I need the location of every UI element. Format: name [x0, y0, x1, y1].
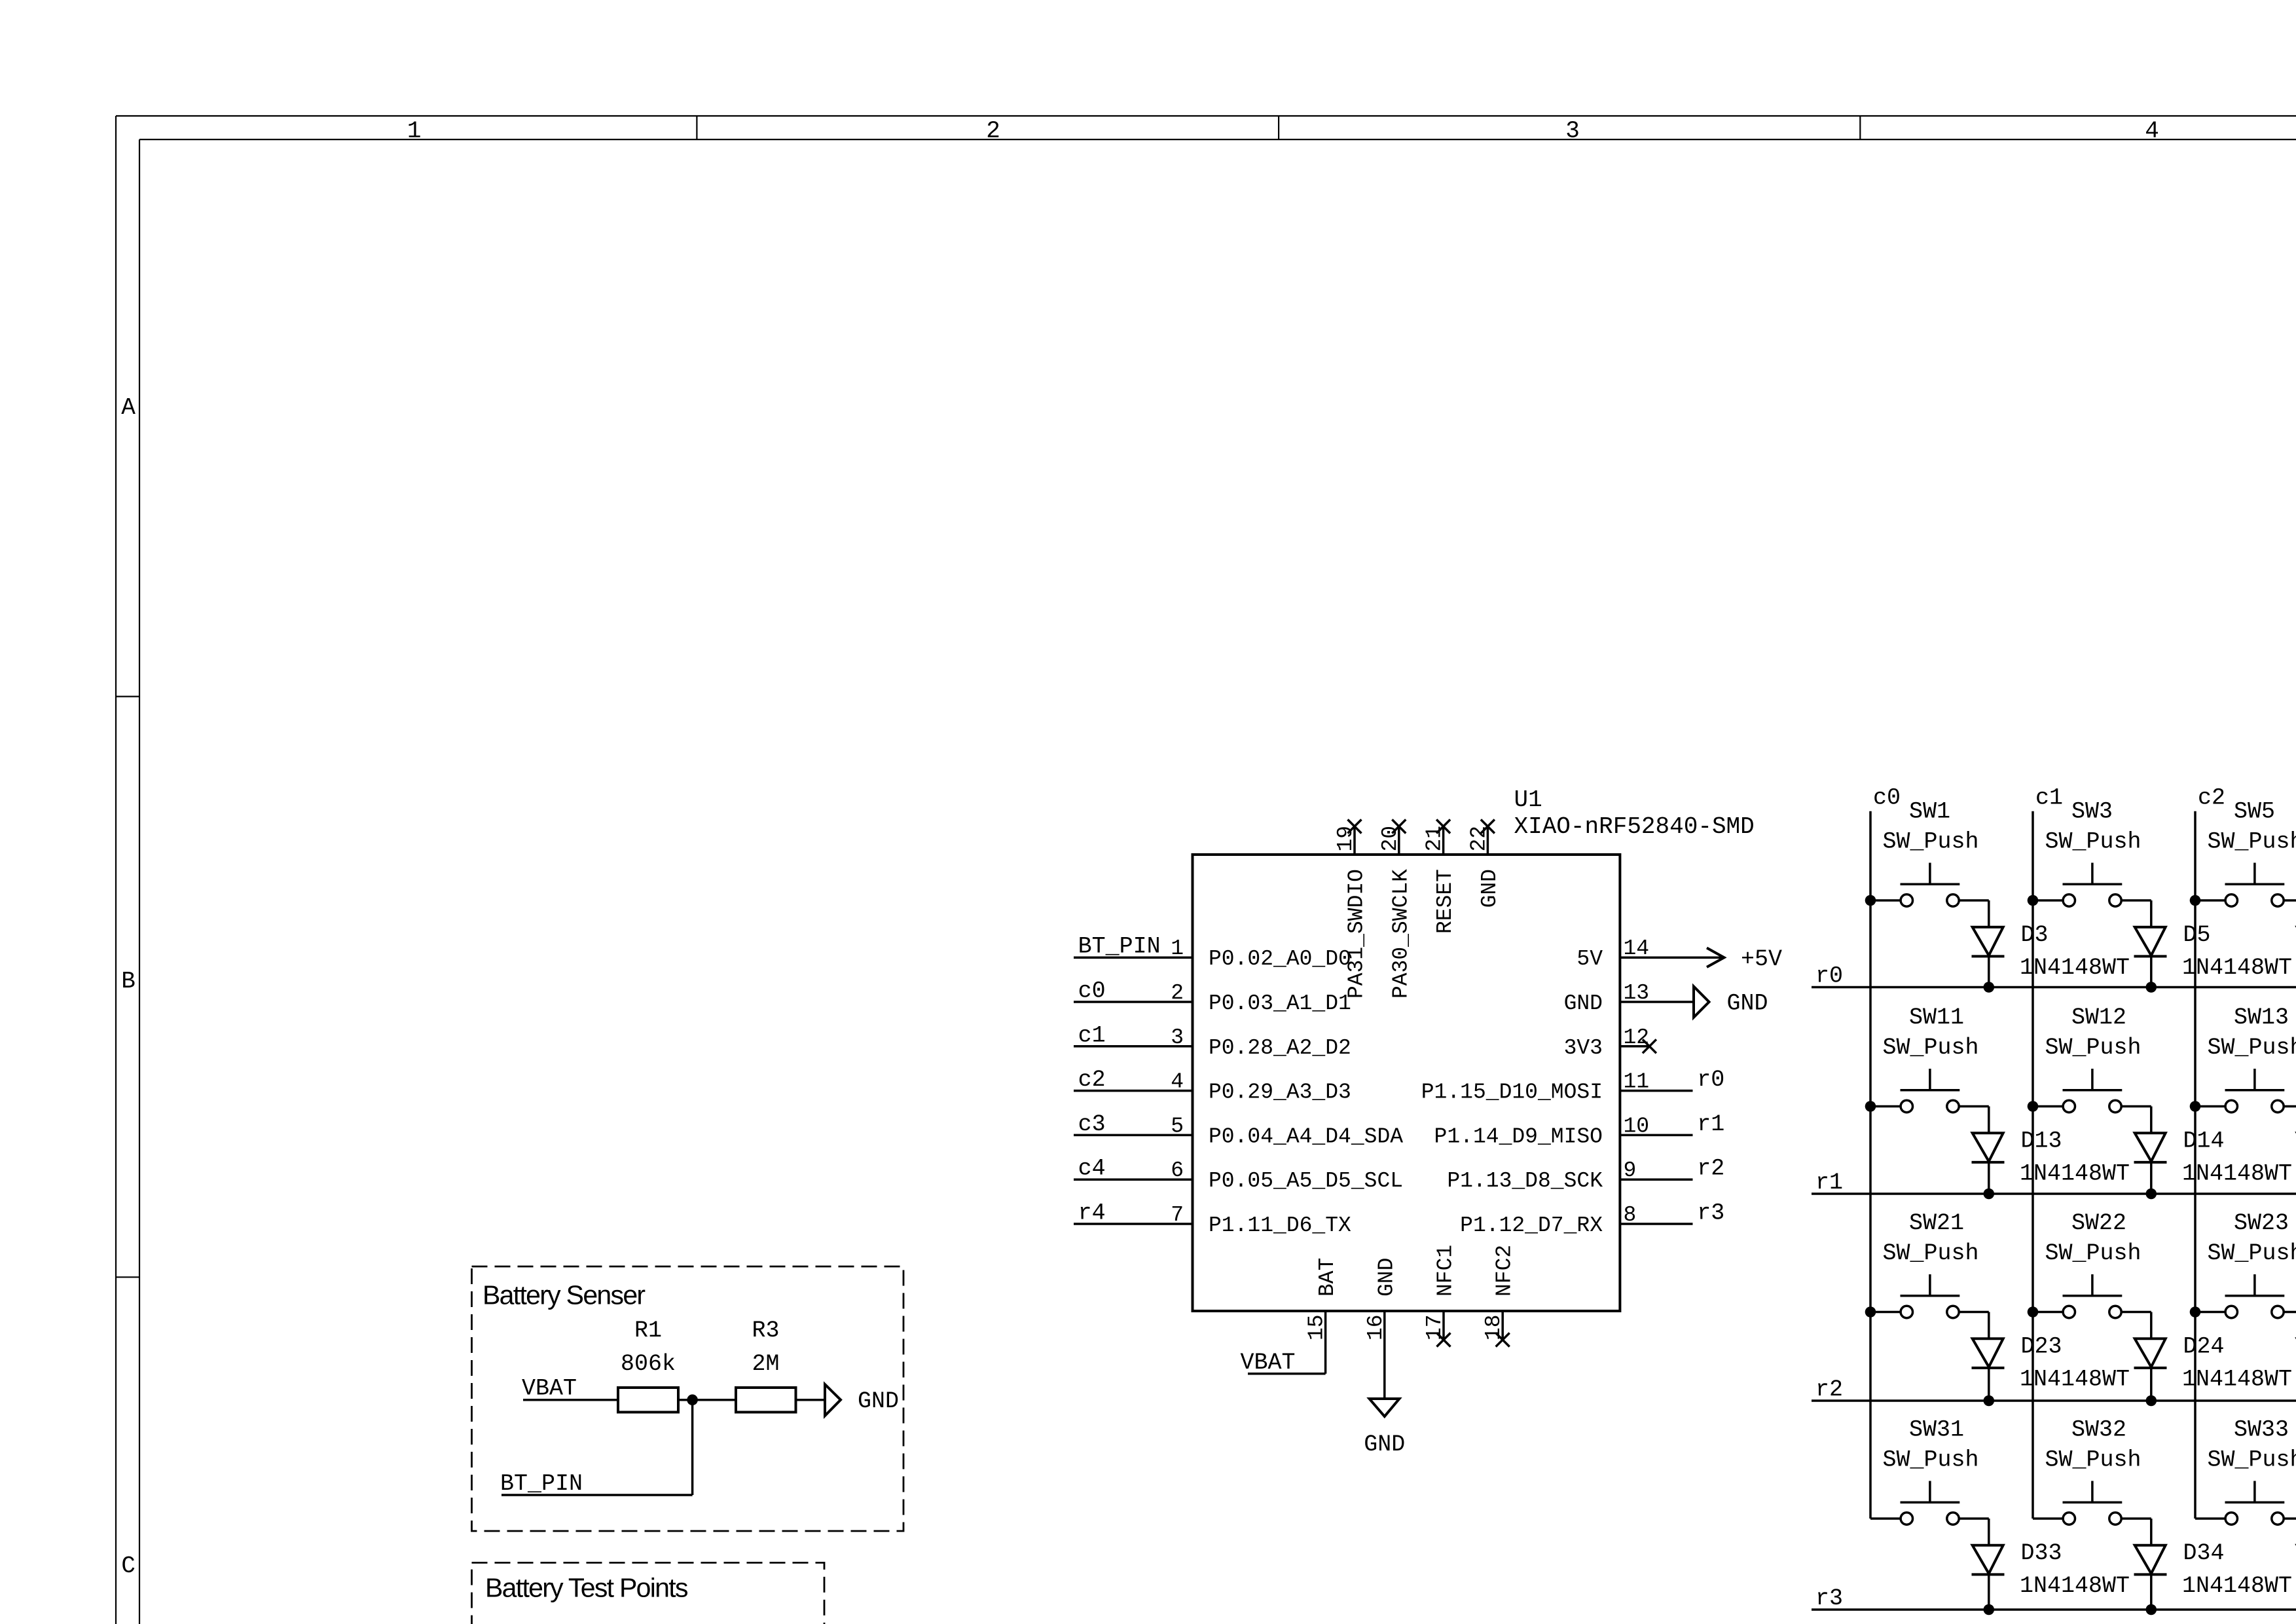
svg-text:GND: GND — [1564, 991, 1603, 1016]
svg-text:r1: r1 — [1815, 1170, 1843, 1196]
svg-text:SW_Push: SW_Push — [2208, 1447, 2296, 1473]
svg-text:3: 3 — [1171, 1025, 1184, 1050]
svg-text:SW_Push: SW_Push — [2208, 829, 2296, 855]
svg-text:6: 6 — [1171, 1158, 1184, 1183]
svg-text:1: 1 — [1171, 936, 1184, 961]
svg-text:c2: c2 — [1078, 1067, 1106, 1093]
svg-text:R3: R3 — [752, 1318, 779, 1344]
svg-text:3: 3 — [1565, 118, 1580, 145]
svg-text:U1: U1 — [1514, 786, 1542, 813]
svg-text:P1.11_D6_TX: P1.11_D6_TX — [1209, 1213, 1351, 1238]
svg-text:c2: c2 — [2198, 785, 2225, 811]
svg-text:SW33: SW33 — [2234, 1417, 2289, 1443]
svg-text:SW12: SW12 — [2071, 1005, 2126, 1031]
svg-text:c1: c1 — [2035, 785, 2063, 811]
svg-text:20: 20 — [1378, 826, 1402, 852]
svg-text:P0.02_A0_D0: P0.02_A0_D0 — [1209, 947, 1351, 971]
svg-text:SW_Push: SW_Push — [2208, 1240, 2296, 1266]
svg-text:1N4148WT: 1N4148WT — [2182, 1573, 2292, 1599]
svg-text:SW_Push: SW_Push — [2045, 829, 2141, 855]
svg-text:SW3: SW3 — [2071, 799, 2113, 825]
svg-text:7: 7 — [1171, 1203, 1184, 1227]
svg-text:Battery Senser: Battery Senser — [483, 1280, 645, 1310]
svg-text:4: 4 — [1171, 1070, 1184, 1094]
svg-text:PA31_SWDIO: PA31_SWDIO — [1345, 869, 1369, 999]
svg-text:+5V: +5V — [1741, 946, 1782, 972]
svg-text:3V3: 3V3 — [1564, 1036, 1603, 1060]
svg-text:SW32: SW32 — [2071, 1417, 2126, 1443]
svg-text:c1: c1 — [1078, 1022, 1106, 1048]
svg-text:2: 2 — [986, 118, 1000, 145]
svg-text:SW22: SW22 — [2071, 1210, 2126, 1236]
svg-text:1: 1 — [407, 118, 422, 145]
svg-text:806k: 806k — [621, 1351, 676, 1377]
svg-text:XIAO-nRF52840-SMD: XIAO-nRF52840-SMD — [1514, 813, 1755, 840]
svg-text:r4: r4 — [1078, 1200, 1106, 1227]
svg-text:P1.14_D9_MISO: P1.14_D9_MISO — [1434, 1124, 1603, 1149]
svg-text:5: 5 — [1171, 1114, 1184, 1138]
svg-text:2M: 2M — [752, 1351, 779, 1377]
svg-text:22: 22 — [1467, 826, 1491, 852]
svg-text:P1.15_D10_MOSI: P1.15_D10_MOSI — [1421, 1080, 1603, 1105]
svg-text:SW_Push: SW_Push — [2045, 1240, 2141, 1266]
svg-text:A: A — [121, 394, 136, 421]
svg-text:P0.28_A2_D2: P0.28_A2_D2 — [1209, 1036, 1351, 1060]
svg-text:D3: D3 — [2021, 922, 2049, 948]
svg-text:5V: 5V — [1576, 947, 1603, 971]
svg-text:C: C — [121, 1553, 136, 1579]
svg-text:1N4148WT: 1N4148WT — [2182, 1367, 2292, 1393]
svg-text:SW23: SW23 — [2234, 1210, 2289, 1236]
svg-text:c4: c4 — [1078, 1156, 1106, 1182]
svg-text:1N4148WT: 1N4148WT — [2182, 1161, 2292, 1187]
svg-text:c0: c0 — [1078, 978, 1106, 1005]
svg-text:D13: D13 — [2021, 1128, 2062, 1154]
svg-text:SW13: SW13 — [2234, 1005, 2289, 1031]
svg-text:BT_PIN: BT_PIN — [1078, 934, 1161, 960]
svg-text:21: 21 — [1423, 826, 1447, 852]
svg-text:Battery Test Points: Battery Test Points — [485, 1573, 688, 1603]
svg-text:SW_Push: SW_Push — [1883, 1447, 1979, 1473]
svg-text:r2: r2 — [1697, 1156, 1724, 1182]
svg-text:19: 19 — [1334, 826, 1358, 852]
svg-text:NFC1: NFC1 — [1434, 1245, 1458, 1297]
svg-text:P1.13_D8_SCK: P1.13_D8_SCK — [1447, 1169, 1603, 1193]
svg-text:D33: D33 — [2021, 1540, 2062, 1566]
svg-text:4: 4 — [2145, 118, 2159, 145]
svg-text:D24: D24 — [2183, 1334, 2225, 1360]
svg-text:1N4148WT: 1N4148WT — [2020, 1161, 2130, 1187]
svg-text:P0.05_A5_D5_SCL: P0.05_A5_D5_SCL — [1209, 1169, 1403, 1193]
svg-text:GND: GND — [1364, 1431, 1405, 1458]
svg-text:r1: r1 — [1697, 1111, 1724, 1137]
svg-text:GND: GND — [1478, 869, 1502, 908]
svg-text:NFC2: NFC2 — [1493, 1245, 1517, 1297]
svg-text:D5: D5 — [2183, 922, 2211, 948]
svg-text:SW_Push: SW_Push — [2208, 1035, 2296, 1061]
svg-text:1N4148WT: 1N4148WT — [2182, 955, 2292, 981]
svg-text:SW_Push: SW_Push — [1883, 829, 1979, 855]
svg-text:D23: D23 — [2021, 1334, 2062, 1360]
svg-text:GND: GND — [1374, 1258, 1398, 1297]
svg-text:SW_Push: SW_Push — [2045, 1035, 2141, 1061]
svg-text:1N4148WT: 1N4148WT — [2020, 1367, 2130, 1393]
svg-text:SW11: SW11 — [1909, 1005, 1964, 1031]
svg-text:1N4148WT: 1N4148WT — [2020, 1573, 2130, 1599]
svg-text:SW_Push: SW_Push — [1883, 1035, 1979, 1061]
svg-text:D14: D14 — [2183, 1128, 2225, 1154]
svg-text:SW31: SW31 — [1909, 1417, 1964, 1443]
svg-text:1N4148WT: 1N4148WT — [2020, 955, 2130, 981]
svg-text:R1: R1 — [634, 1318, 662, 1344]
svg-text:VBAT: VBAT — [1240, 1350, 1295, 1376]
svg-text:SW1: SW1 — [1909, 799, 1950, 825]
svg-text:GND: GND — [1727, 991, 1768, 1017]
svg-text:SW_Push: SW_Push — [1883, 1240, 1979, 1266]
svg-text:SW21: SW21 — [1909, 1210, 1964, 1236]
svg-text:r0: r0 — [1815, 963, 1843, 989]
svg-text:BAT: BAT — [1315, 1258, 1339, 1297]
svg-text:r3: r3 — [1697, 1200, 1724, 1227]
svg-text:GND: GND — [858, 1388, 899, 1414]
svg-text:c0: c0 — [1873, 785, 1901, 811]
svg-text:B: B — [121, 968, 136, 995]
svg-text:P0.04_A4_D4_SDA: P0.04_A4_D4_SDA — [1209, 1124, 1403, 1149]
svg-text:RESET: RESET — [1433, 869, 1457, 934]
svg-text:r2: r2 — [1815, 1376, 1843, 1403]
svg-text:P1.12_D7_RX: P1.12_D7_RX — [1460, 1213, 1603, 1238]
svg-text:SW5: SW5 — [2234, 799, 2275, 825]
svg-text:SW_Push: SW_Push — [2045, 1447, 2141, 1473]
svg-text:c3: c3 — [1078, 1111, 1106, 1137]
svg-text:P0.29_A3_D3: P0.29_A3_D3 — [1209, 1080, 1351, 1105]
svg-text:r0: r0 — [1697, 1067, 1724, 1093]
svg-text:PA30_SWCLK: PA30_SWCLK — [1389, 869, 1413, 999]
svg-text:BT_PIN: BT_PIN — [500, 1471, 583, 1497]
svg-text:VBAT: VBAT — [522, 1376, 577, 1402]
svg-text:D34: D34 — [2183, 1540, 2225, 1566]
svg-text:r3: r3 — [1815, 1585, 1843, 1612]
svg-text:P0.03_A1_D1: P0.03_A1_D1 — [1209, 991, 1351, 1016]
svg-text:2: 2 — [1171, 981, 1184, 1005]
